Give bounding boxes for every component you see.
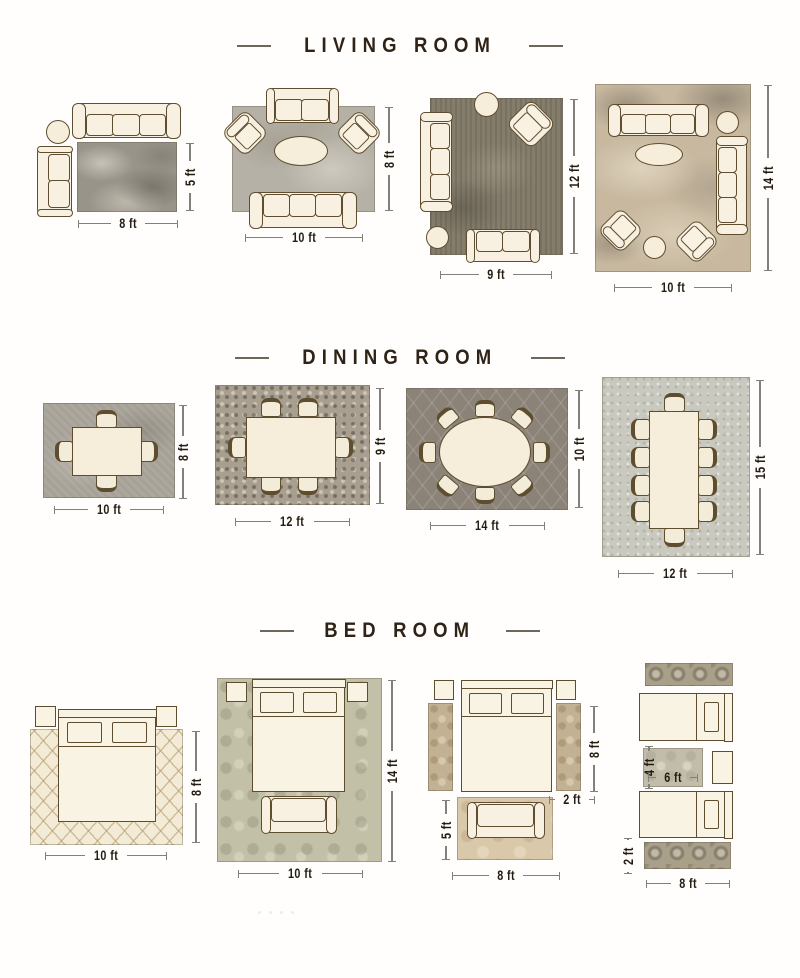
rug-height-dimension: 8 ft <box>175 405 191 499</box>
bench-arm <box>261 796 271 834</box>
title-dash <box>235 357 269 359</box>
rug-width-dimension: 10 ft <box>45 848 167 863</box>
dimension-label: 12 ft <box>659 566 693 581</box>
sofa-cushion <box>718 197 737 224</box>
round-side-table <box>46 120 70 144</box>
bed <box>252 679 345 792</box>
title-dash <box>529 45 563 47</box>
dining-table <box>72 427 142 476</box>
dimension-label: 8 ft <box>382 146 397 172</box>
dimension-line <box>550 799 554 800</box>
dining-chair <box>664 393 685 412</box>
dimension-line <box>379 389 380 429</box>
dimension-line <box>523 875 558 876</box>
dining-chair <box>475 400 495 417</box>
sofa-cushion <box>48 154 70 182</box>
sofa-cushion <box>476 231 504 252</box>
dimension-line <box>649 777 655 778</box>
blanket-line <box>696 791 697 838</box>
dimension-label: 8 ft <box>114 216 141 231</box>
section-title-bed-room: BED ROOM <box>0 619 800 643</box>
dimension-label: 14 ft <box>385 755 400 787</box>
rug-height-dimension: 12 ft <box>566 99 582 254</box>
dimension-label: 12 ft <box>567 160 582 192</box>
nightstand <box>226 682 247 702</box>
blanket-line <box>696 693 697 741</box>
runner-height-dimension: 8 ft <box>586 706 602 792</box>
bench-arm <box>534 802 545 839</box>
pillow <box>511 693 544 714</box>
section-title-text: LIVING ROOM <box>304 34 496 58</box>
dimension-label: 12 ft <box>276 514 310 529</box>
dining-chair <box>631 447 650 468</box>
blanket-line <box>461 716 552 717</box>
runner-rug <box>644 842 731 869</box>
dining-chair <box>664 528 685 547</box>
oval-coffee-table <box>274 136 328 166</box>
dining-table <box>649 411 699 529</box>
round-side-table <box>474 92 499 117</box>
watermark-dot <box>280 911 283 914</box>
dining-chair <box>96 410 117 428</box>
dimension-line <box>705 883 728 884</box>
pillow <box>260 692 294 713</box>
dimension-line <box>767 198 768 269</box>
dimension-line <box>615 287 651 288</box>
headboard <box>724 791 733 839</box>
bed <box>58 709 156 822</box>
sofa-cushion <box>289 194 317 217</box>
watermark-dots <box>258 911 294 914</box>
sofa-cushion <box>48 180 70 208</box>
rug-width-dimension: 10 ft <box>245 230 363 245</box>
rug-width-dimension: 10 ft <box>614 280 732 295</box>
rug-height-dimension: 10 ft <box>571 390 587 508</box>
dining-chair <box>261 398 281 417</box>
sofa-cushion <box>718 147 737 174</box>
sofa-cushion <box>621 114 647 134</box>
sofa-arm <box>716 136 748 147</box>
dimension-line <box>647 883 670 884</box>
dimension-line <box>195 803 196 841</box>
section-title-living-room: LIVING ROOM <box>0 34 800 58</box>
bench-cushion <box>271 798 327 821</box>
bedroom-bench <box>467 802 544 838</box>
section-title-text: BED ROOM <box>325 619 476 643</box>
runner-rug <box>428 703 453 791</box>
rug-width-dimension: 10 ft <box>238 866 363 881</box>
dimension-label: 6 ft <box>659 770 686 785</box>
dimension-line <box>189 193 190 209</box>
dining-chair <box>140 441 158 462</box>
pillow <box>303 692 337 713</box>
dining-chair <box>698 447 717 468</box>
dining-table <box>246 417 336 478</box>
sofa-cushions <box>263 194 343 217</box>
bench-arm <box>326 796 336 834</box>
dimension-line <box>578 391 579 428</box>
sofa-cushion <box>86 114 114 136</box>
dimension-line <box>759 488 760 554</box>
rug-width-dimension: 8 ft <box>78 216 178 231</box>
sofa <box>420 112 452 211</box>
dimension-label: 8 ft <box>176 439 191 465</box>
sofa-arm <box>37 209 73 216</box>
headboard <box>58 709 157 718</box>
rug-width-dimension: 9 ft <box>440 267 552 282</box>
twin-bed <box>639 693 732 741</box>
round-side-table <box>426 226 449 249</box>
nightstand <box>712 751 733 784</box>
dimension-line <box>453 875 488 876</box>
dimension-label: 14 ft <box>761 162 776 194</box>
title-dash <box>506 630 540 632</box>
dimension-line <box>513 274 550 275</box>
sofa-cushions <box>718 147 737 224</box>
dining-chair <box>533 442 550 463</box>
sofa-arm <box>249 192 264 229</box>
sofa-arm <box>695 104 709 137</box>
sofa-arm <box>530 229 540 263</box>
sofa-arm <box>466 229 476 263</box>
loveseat <box>466 229 539 262</box>
sofa-cushion <box>430 148 450 175</box>
dimension-line <box>236 521 271 522</box>
area-rug <box>77 142 177 212</box>
dimension-line <box>379 462 380 502</box>
bench-cushion <box>477 804 534 827</box>
nightstand <box>35 706 56 727</box>
watermark-dot <box>291 911 294 914</box>
rug-size-guide: LIVING ROOM 8 ft 5 ft 10 ft <box>0 0 800 978</box>
sofa-cushion <box>502 231 530 252</box>
nightstand <box>347 682 368 702</box>
dimension-line <box>578 469 579 506</box>
dimension-line <box>182 468 183 497</box>
dimension-label: 2 ft <box>621 843 636 869</box>
dimension-line <box>767 86 768 157</box>
foot-rug-height-dimension: 5 ft <box>438 800 454 860</box>
nightstand <box>434 680 454 700</box>
dimension-label: 10 ft <box>287 230 321 245</box>
sofa-cushions <box>621 114 696 134</box>
dimension-label: 14 ft <box>471 518 505 533</box>
dimension-line <box>55 509 87 510</box>
dimension-line <box>325 237 361 238</box>
dimension-label: 5 ft <box>439 817 454 843</box>
dimension-line <box>46 855 84 856</box>
dining-chair <box>631 419 650 440</box>
dimension-line <box>593 707 594 732</box>
dimension-line <box>391 791 392 860</box>
sofa <box>716 136 747 234</box>
runner-height-dimension: 2 ft <box>620 838 636 874</box>
dimension-label: 10 ft <box>89 848 123 863</box>
rug-width-dimension: 14 ft <box>430 518 545 533</box>
dimension-label: 8 ft <box>674 876 701 891</box>
dimension-line <box>573 100 574 156</box>
sofa-arm <box>37 146 73 153</box>
dimension-line <box>314 521 349 522</box>
dimension-label: 8 ft <box>189 774 204 800</box>
dimension-label: 10 ft <box>92 502 126 517</box>
dimension-line <box>589 799 593 800</box>
runner-rug <box>645 663 733 686</box>
runner-rug <box>556 703 581 791</box>
sofa-arm <box>72 103 87 139</box>
dimension-line <box>246 237 282 238</box>
loveseat <box>37 146 72 216</box>
runner-width-dimension: 8 ft <box>646 876 730 891</box>
dimension-line <box>648 747 649 751</box>
dimension-line <box>388 175 389 209</box>
dimension-line <box>694 287 730 288</box>
headboard <box>461 680 553 689</box>
oval-coffee-table <box>635 143 683 166</box>
nightstand <box>556 680 576 700</box>
watermark-dot <box>258 911 261 914</box>
pillow <box>704 702 719 732</box>
dimension-label: 8 ft <box>587 736 602 762</box>
rug-height-dimension: 8 ft <box>381 107 397 211</box>
dining-chair <box>698 419 717 440</box>
rug-width-dimension: 12 ft <box>235 514 350 529</box>
sofa-arm <box>608 104 622 137</box>
bed <box>461 680 552 792</box>
twin-bed <box>639 791 732 838</box>
sofa-cushion <box>263 194 291 217</box>
dimension-label: 8 ft <box>492 868 519 883</box>
dining-chair <box>298 398 318 417</box>
dimension-line <box>189 144 190 160</box>
bedroom-bench <box>261 796 336 833</box>
oval-dining-table <box>439 417 531 487</box>
dimension-line <box>79 223 110 224</box>
dining-chair <box>335 437 353 458</box>
sofa-arm <box>266 88 276 124</box>
dimension-line <box>445 801 446 813</box>
dining-chair <box>631 501 650 522</box>
dimension-label: 10 ft <box>656 280 690 295</box>
sofa-arm <box>342 192 357 229</box>
dining-chair <box>475 487 495 504</box>
sofa-cushion <box>315 194 343 217</box>
rug-width-dimension: 12 ft <box>618 566 733 581</box>
dimension-label: 2 ft <box>558 792 585 807</box>
dimension-line <box>441 274 478 275</box>
dining-chair <box>298 476 318 495</box>
section-title-dining-room: DINING ROOM <box>0 346 800 370</box>
sofa-cushion <box>645 114 671 134</box>
dimension-line <box>509 525 544 526</box>
pillow <box>112 722 148 743</box>
dimension-line <box>239 873 279 874</box>
headboard <box>724 693 733 742</box>
rug-height-dimension: 14 ft <box>384 680 400 862</box>
dimension-label: 15 ft <box>753 451 768 483</box>
section-title-text: DINING ROOM <box>302 346 497 370</box>
dimension-line <box>388 108 389 142</box>
dimension-line <box>690 777 696 778</box>
pillow <box>67 722 103 743</box>
dining-chair <box>698 475 717 496</box>
sofa <box>72 103 180 138</box>
blanket-line <box>58 746 156 747</box>
blanket-line <box>252 716 345 717</box>
title-dash <box>237 45 271 47</box>
bench-arm <box>467 802 478 839</box>
sofa-cushion <box>670 114 696 134</box>
dining-chair <box>55 441 73 462</box>
sofa-cushions <box>48 154 70 208</box>
sofa-cushions <box>476 231 530 252</box>
headboard <box>252 679 346 688</box>
round-side-table <box>716 111 739 134</box>
dimension-label: 10 ft <box>284 866 318 881</box>
loveseat <box>266 88 338 123</box>
sofa-arm <box>166 103 181 139</box>
dimension-line <box>391 681 392 750</box>
sofa-cushion <box>718 172 737 199</box>
dimension-label: 10 ft <box>572 433 587 465</box>
dimension-line <box>127 855 165 856</box>
sofa-arm <box>420 112 453 123</box>
sofa-cushion <box>430 123 450 150</box>
bench-cushion <box>477 804 534 827</box>
dimension-line <box>431 525 466 526</box>
sofa-arm <box>420 201 453 212</box>
sofa-arm <box>716 224 748 235</box>
dimension-line <box>445 846 446 858</box>
dimension-line <box>182 406 183 435</box>
rug-height-dimension: 8 ft <box>188 731 204 843</box>
dimension-line <box>145 223 176 224</box>
rug-height-dimension: 5 ft <box>182 143 198 211</box>
dining-chair <box>261 476 281 495</box>
sofa-cushions <box>430 123 450 201</box>
sofa-cushion <box>430 174 450 201</box>
sofa <box>608 104 708 136</box>
sofa-cushions <box>86 114 167 136</box>
title-dash <box>531 357 565 359</box>
dimension-line <box>195 732 196 770</box>
sofa-arm <box>329 88 339 124</box>
dimension-line <box>697 573 732 574</box>
dining-chair <box>419 442 436 463</box>
watermark-dot <box>269 911 272 914</box>
dimension-line <box>573 197 574 253</box>
rug-height-dimension: 15 ft <box>752 380 768 555</box>
dimension-line <box>759 381 760 447</box>
sofa-cushions <box>275 99 328 121</box>
title-dash <box>260 630 294 632</box>
dining-chair <box>631 475 650 496</box>
nightstand <box>156 706 177 727</box>
dimension-line <box>322 873 362 874</box>
accent-rug-width-dimension: 6 ft <box>648 770 698 785</box>
rug-width-dimension: 10 ft <box>54 502 164 517</box>
sofa-cushion <box>275 99 302 121</box>
pillow <box>469 693 502 714</box>
foot-rug-width-dimension: 8 ft <box>452 868 560 883</box>
dimension-line <box>619 573 654 574</box>
dimension-label: 5 ft <box>183 164 198 190</box>
dimension-label: 9 ft <box>373 433 388 459</box>
rug-height-dimension: 14 ft <box>760 85 776 271</box>
sofa-cushion <box>301 99 328 121</box>
rug-height-dimension: 9 ft <box>372 388 388 504</box>
dining-chair <box>228 437 246 458</box>
sofa-cushion <box>112 114 140 136</box>
sofa <box>249 192 356 228</box>
runner-width-dimension: 2 ft <box>549 792 595 807</box>
dimension-label: 9 ft <box>482 267 509 282</box>
round-side-table <box>643 236 666 259</box>
dining-chair <box>698 501 717 522</box>
dimension-line <box>593 765 594 790</box>
dimension-line <box>130 509 162 510</box>
pillow <box>704 800 719 830</box>
bench-cushion <box>271 798 327 821</box>
dining-chair <box>96 474 117 492</box>
sofa-cushion <box>139 114 167 136</box>
